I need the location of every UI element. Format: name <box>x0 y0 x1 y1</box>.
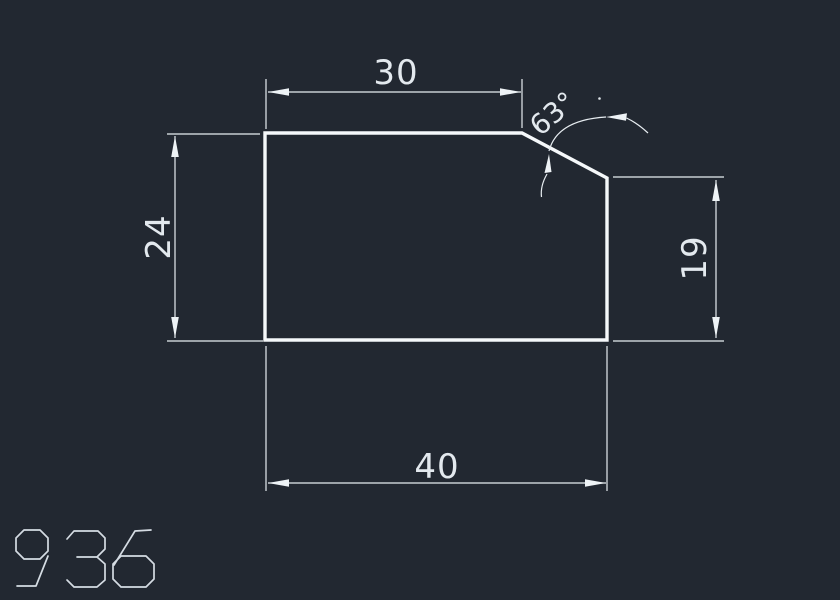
stencil-digit-9-loop <box>16 530 48 559</box>
arrowhead-top-icon <box>171 136 179 157</box>
dimension-top-width: 30 <box>266 53 522 129</box>
arrowhead-right-icon <box>585 479 606 487</box>
dimension-value-right-height: 19 <box>675 235 715 280</box>
arrowhead-right-icon <box>500 88 521 96</box>
dimension-right-height: 19 <box>613 177 724 341</box>
arrowhead-bottom-icon <box>712 317 720 338</box>
stencil-digit-3-top <box>67 531 105 557</box>
dimension-bottom-width: 40 <box>266 346 607 491</box>
arrowhead-bottom-icon <box>171 317 179 338</box>
dimension-chamfer-angle: 63° <box>523 85 648 197</box>
arrowhead-top-icon <box>712 180 720 201</box>
stencil-digit-6-stem <box>114 530 151 565</box>
arrowhead-upper-icon <box>606 113 627 121</box>
arc-tail-lower <box>541 174 547 197</box>
cad-viewport[interactable]: 30 24 19 40 <box>0 0 840 600</box>
dimension-value-top-width: 30 <box>373 53 418 93</box>
cad-drawing: 30 24 19 40 <box>0 0 840 600</box>
arrowhead-lower-icon <box>545 154 552 173</box>
arc-tail-upper <box>627 118 649 133</box>
dimension-value-chamfer-angle: 63° <box>523 85 582 142</box>
stray-node-dot <box>598 97 601 100</box>
stencil-digit-3-bottom <box>67 557 105 587</box>
stencil-digit-9-tail <box>17 556 48 586</box>
dimension-value-left-height: 24 <box>139 214 179 259</box>
part-outline <box>265 133 607 340</box>
arrowhead-left-icon <box>268 479 289 487</box>
stencil-digit-6-loop <box>113 556 154 587</box>
arrowhead-left-icon <box>268 88 289 96</box>
dimension-value-bottom-width: 40 <box>414 447 459 487</box>
drawing-number: 936 <box>16 530 154 587</box>
dimension-left-height: 24 <box>139 134 263 341</box>
